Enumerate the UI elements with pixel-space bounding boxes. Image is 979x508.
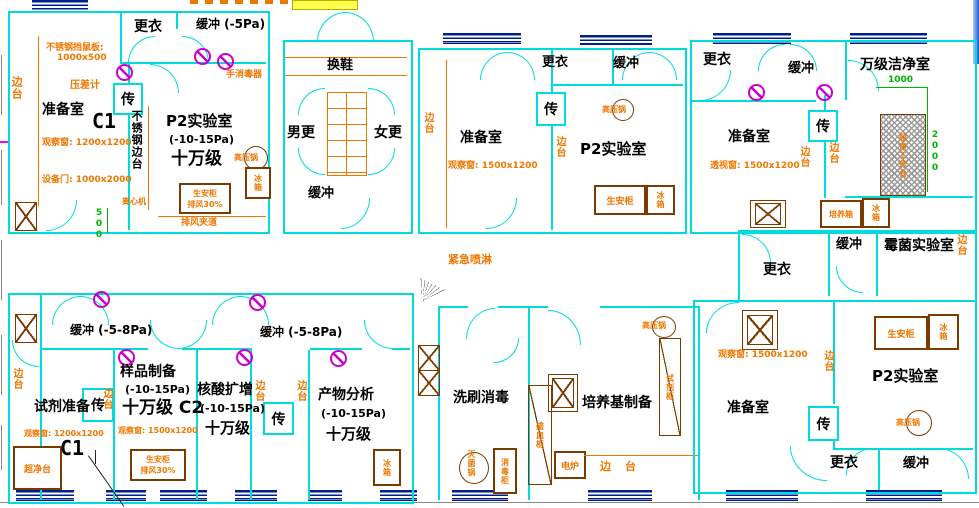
clean-bench-box: 超净台 xyxy=(13,446,62,490)
room-label-men-changing: 男更 xyxy=(287,126,315,141)
wall-segment xyxy=(600,306,700,308)
room-label-product-analysis: 产物分析 xyxy=(318,388,374,403)
clean-work-bench: 超净工作台 xyxy=(880,114,926,196)
room-label-buffer: 缓冲 xyxy=(308,187,334,201)
pass-box: 传 xyxy=(263,402,294,435)
biosafety-cabinet-box: 生安柜 排风30% xyxy=(130,449,186,481)
edge-line xyxy=(1,335,2,395)
room-label-washing: 洗刷消毒 xyxy=(453,391,509,406)
yellow-highlight-bar xyxy=(292,0,358,10)
room-label-p2-lab: P2实验室 xyxy=(166,113,232,130)
room-label-buffer: 缓冲 xyxy=(613,57,639,71)
fridge-label: 冰箱 xyxy=(938,323,949,341)
ss-bench-label: 不锈钢边台 xyxy=(130,110,142,205)
bsc-exhaust-label: 排风30% xyxy=(140,465,175,476)
valve-icon xyxy=(194,48,211,65)
room-label-buffer: 缓冲 xyxy=(903,457,929,471)
side-bench-label: 边台 xyxy=(295,380,306,426)
orange-dash-row xyxy=(190,0,290,4)
dimension-line xyxy=(107,208,108,233)
window-symbol xyxy=(580,35,652,45)
wall-segment xyxy=(551,84,683,86)
note-obs-window: 观察窗: 1500x1200 xyxy=(118,427,198,436)
edge-line xyxy=(1,240,2,300)
bsc-label: 生安柜 xyxy=(193,188,217,199)
floor-plan-canvas: 传 高压锅 冰箱 生安柜 排风30% 更衣 缓冲 (-5Pa) 不锈钢挡鼠板: … xyxy=(0,0,979,508)
wall-segment xyxy=(833,300,835,404)
bsc-label: 生安柜 xyxy=(606,194,633,207)
wall-segment xyxy=(876,232,878,296)
note-obs-window: 观察窗: 1500x1200 xyxy=(448,162,538,172)
room-label-p2-lab: P2实验室 xyxy=(872,368,938,385)
wall-segment xyxy=(392,348,410,350)
fridge-label: 冰箱 xyxy=(655,191,666,209)
shoe-locker xyxy=(327,92,367,176)
sterilizer-pot-label: 灭菌锅 xyxy=(466,450,477,484)
pass-box-label: 传 xyxy=(816,116,830,136)
side-bench-label: 边台 xyxy=(253,380,264,426)
incubator-label: 培养箱 xyxy=(829,209,853,220)
room-label-buffer: 缓冲 xyxy=(836,238,862,252)
pressure-range-label: (-10-15Pa) xyxy=(321,408,386,420)
autoclave-label: 高压锅 xyxy=(642,320,666,331)
class-label: 十万级 xyxy=(205,420,250,437)
wall-segment xyxy=(196,350,198,500)
bsc-label: 生安柜 xyxy=(887,327,914,340)
side-bench-label: 边台 xyxy=(554,136,565,184)
bsc-exhaust-label: 排风30% xyxy=(187,199,222,210)
disinfect-cabinet-box: 消毒柜 xyxy=(493,448,517,494)
autoclave-label: 高压锅 xyxy=(896,417,920,428)
wall-segment xyxy=(120,11,122,64)
pressure-range-label: (-10-15Pa) xyxy=(169,134,234,146)
room-label-buffer: 缓冲 xyxy=(788,62,814,76)
locker-divider xyxy=(346,93,347,175)
autoclave-label: 高压锅 xyxy=(602,104,626,115)
incubator-box: 培养箱 xyxy=(820,200,862,228)
room-code-c1: C1 xyxy=(60,437,84,459)
edge-line xyxy=(1,55,2,115)
room-label-buffer-58pa: 缓冲 (-5-8Pa) xyxy=(70,324,152,337)
room-label-changing: 更衣 xyxy=(830,456,858,471)
wall-segment xyxy=(530,306,548,308)
bsc-label: 生安柜 xyxy=(146,454,170,465)
edge-line xyxy=(1,150,2,205)
fridge-label: 冰箱 xyxy=(871,204,882,222)
wall-segment xyxy=(113,350,115,500)
window-symbol xyxy=(443,33,521,44)
equipment-box-icon xyxy=(15,314,37,343)
equipment-box-icon xyxy=(747,315,773,345)
room-code-c1: C1 xyxy=(92,110,116,132)
note-equip-door: 设备门: 1000x2000 xyxy=(42,176,132,186)
edge-line xyxy=(1,425,2,470)
side-bench-label: 边台 xyxy=(955,234,966,278)
fridge-label: 冰箱 xyxy=(253,174,264,192)
window-symbol xyxy=(588,490,652,501)
note-pressure-gauge: 压差计 xyxy=(70,80,100,91)
pass-box: 传 xyxy=(808,110,838,142)
exhaust-duct-line xyxy=(158,216,266,217)
class-label-c2: 十万级 C2 xyxy=(122,399,203,418)
clean-work-bench-label: 超净工作台 xyxy=(898,133,909,178)
wall-segment xyxy=(498,306,530,308)
class-label: 十万级 xyxy=(171,150,222,169)
room-label-prep: 准备室 xyxy=(42,103,84,118)
valve-icon xyxy=(330,350,347,367)
door-arc xyxy=(345,12,374,42)
class-label: 十万级 xyxy=(326,426,371,443)
disinfect-cabinet-label: 消毒柜 xyxy=(500,458,511,485)
side-bench-label: 边台 xyxy=(600,461,650,473)
side-bench-label: 边台 xyxy=(422,112,433,168)
note-rat-guard-size: 1000x500 xyxy=(57,54,107,64)
fridge-box: 冰箱 xyxy=(646,185,675,215)
biosafety-cabinet-box: 生安柜 xyxy=(594,185,646,215)
door-arc xyxy=(317,12,346,42)
room-label-changing: 更衣 xyxy=(134,20,162,35)
fridge-box: 冰箱 xyxy=(245,167,271,199)
equipment-box-icon xyxy=(418,345,440,371)
fridge-box: 冰箱 xyxy=(862,198,890,228)
side-bench-label: 边台 xyxy=(11,368,22,424)
emergency-shower-label: 紧急喷淋 xyxy=(448,254,492,266)
side-bench-label: 边台 xyxy=(822,350,833,402)
reagent-cabinet: 试剂柜 xyxy=(659,338,681,436)
biosafety-cabinet-box: 生安柜 xyxy=(874,316,928,350)
room-label-changing: 更衣 xyxy=(542,56,568,70)
pass-box: 传 xyxy=(808,406,839,441)
side-bench-label: 边台 xyxy=(10,76,22,142)
wall-segment xyxy=(551,124,553,230)
bench-edge xyxy=(38,36,39,206)
room-label-p2-lab: P2实验室 xyxy=(580,141,646,158)
wall-segment xyxy=(250,350,252,500)
exhaust-passage-label: 排风夹道 xyxy=(181,219,217,229)
pass-box-label: 传 xyxy=(121,89,135,109)
wall-segment xyxy=(308,350,310,500)
room-label-prep: 准备室 xyxy=(727,401,769,416)
cursor-leader-line xyxy=(95,450,96,464)
dish-cabinet-label: 盛皿柜 xyxy=(535,422,546,449)
wall-segment xyxy=(824,138,826,198)
door-arc xyxy=(494,338,519,363)
equipment-box-icon xyxy=(418,370,440,396)
pass-box: 传 xyxy=(536,92,566,126)
bench-edge xyxy=(446,60,447,228)
bench-edge xyxy=(584,455,698,456)
fridge-label: 冰箱 xyxy=(382,459,393,477)
equipment-box-icon xyxy=(755,203,781,225)
side-bench-label: 边台 xyxy=(798,146,809,196)
room-label-mold-lab: 霉菌实验室 xyxy=(884,239,954,254)
centrifuge-label: 离心机 xyxy=(122,198,146,207)
note-see-window: 透视窗: 1500x1200 xyxy=(710,162,800,172)
room-label-changing: 更衣 xyxy=(763,263,791,278)
dimension-500: 500 xyxy=(94,208,104,234)
pressure-range-label: (-10-15Pa) xyxy=(125,384,190,396)
room-label-prep: 准备室 xyxy=(460,131,502,146)
fridge-box: 冰箱 xyxy=(373,449,401,486)
valve-icon xyxy=(249,294,266,311)
room-label-sample-prep: 样品制备 xyxy=(120,365,176,380)
wall-segment xyxy=(176,11,178,29)
electric-stove-box: 电炉 xyxy=(554,451,586,479)
fridge-box: 冰箱 xyxy=(928,314,959,350)
valve-icon xyxy=(93,291,110,308)
wall-segment xyxy=(438,306,468,308)
note-obs-window: 观察窗: 1200x1200 xyxy=(42,139,132,149)
valve-icon xyxy=(236,349,253,366)
side-bench-label: 边台 xyxy=(101,388,112,450)
room-label-clean-room-10k: 万级洁净室 xyxy=(860,58,930,73)
valve-icon xyxy=(116,64,133,81)
note-obs-window: 观察窗: 1500x1200 xyxy=(718,351,808,361)
pass-box-label: 传 xyxy=(817,414,831,434)
dimension-1000: 1000 xyxy=(888,75,913,85)
wall-segment xyxy=(438,306,440,500)
biosafety-cabinet-box: 生安柜 排风30% xyxy=(179,183,231,214)
room-label-changing: 更衣 xyxy=(703,53,731,68)
pass-box-label: 传 xyxy=(272,409,286,429)
electric-stove-label: 电炉 xyxy=(561,459,579,472)
valve-icon xyxy=(217,53,234,70)
room-label-reagent-prep: 试剂准备 xyxy=(34,400,90,415)
room-label-women-changing: 女更 xyxy=(374,126,402,141)
bench-edge xyxy=(148,106,149,210)
reagent-cabinet-label: 试剂柜 xyxy=(665,374,676,401)
valve-icon xyxy=(748,84,765,101)
hand-disinfector-label: 手消毒器 xyxy=(226,71,262,81)
dimension-line xyxy=(876,87,928,88)
door-arc xyxy=(466,308,495,339)
clean-bench-label: 超净台 xyxy=(24,462,51,475)
wall-segment xyxy=(833,448,973,450)
valve-icon xyxy=(816,84,833,101)
door-arc xyxy=(548,310,581,345)
room-label-buffer-5pa: 缓冲 (-5Pa) xyxy=(196,18,265,31)
wall-segment xyxy=(828,232,830,296)
room-label-nucleic-amp: 核酸扩增 xyxy=(197,383,253,398)
side-bench-label: 边台 xyxy=(827,142,838,194)
shoe-bench-line xyxy=(285,75,407,76)
room-label-prep: 准备室 xyxy=(728,130,770,145)
room-label-buffer-58pa: 缓冲 (-5-8Pa) xyxy=(260,326,342,339)
dimension-2000: 2000 xyxy=(930,130,940,164)
emergency-shower-icon xyxy=(420,278,448,302)
wall-segment xyxy=(878,448,880,490)
pass-box-label: 传 xyxy=(544,99,558,119)
wall-segment xyxy=(845,42,847,100)
room-label-shoe-change: 换鞋 xyxy=(327,59,353,73)
dimension-line xyxy=(927,88,928,192)
room-label-medium-prep: 培养基制备 xyxy=(582,396,652,411)
sink-icon xyxy=(552,378,574,408)
wall-segment xyxy=(40,348,148,350)
autoclave-label: 高压锅 xyxy=(234,152,258,163)
equipment-box-icon xyxy=(15,202,37,231)
